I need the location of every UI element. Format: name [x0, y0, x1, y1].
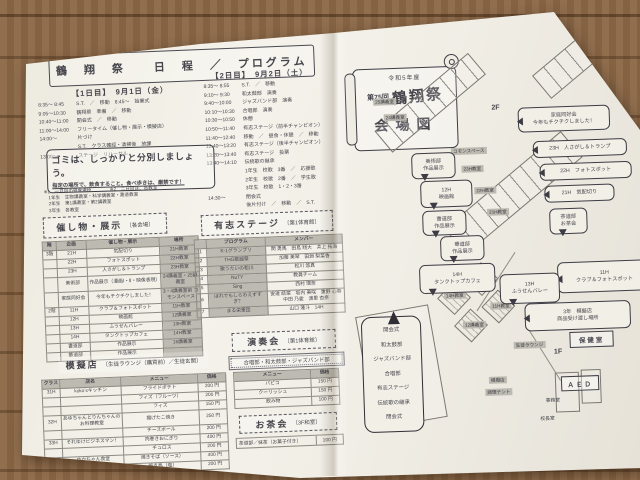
events-table: 階 企画 催し物・展示 場所 3階21H気配切り21H教室22Hフォトスポット2…: [42, 235, 204, 362]
stage-title: 有志ステージ: [214, 216, 280, 232]
schedule-time: 10:40～11:00: [39, 117, 77, 126]
callout-line: クラブ＆フォトスポット: [576, 275, 633, 284]
callout-line: 作品展示: [434, 222, 455, 229]
callout-22h: 22H フォトスポット: [539, 161, 632, 181]
office-label: 事務室: [546, 396, 561, 403]
schedule-time: 11:00～14:00: [39, 126, 77, 135]
gym-program-line: 開会式: [383, 327, 399, 334]
callout-tea-ceremony: 茶道部 お茶会: [549, 207, 588, 234]
aed-box: ＡＥＤ: [561, 375, 600, 391]
schedule-text: S.T. ／ 移動: [241, 80, 275, 88]
notice-line1: ゴミは、しっかりと分別しましょう。: [51, 149, 210, 180]
shop-class-cell: [46, 467, 64, 477]
room-chip: 25講義室: [373, 98, 396, 106]
left-page-program: 鶴 翔 祭 日 程 ／ プログラム 【1日目】 9月1日（金） 8:35～ 8:…: [28, 40, 351, 476]
schedule-time: 14:30～: [208, 193, 246, 202]
stage-no-cell: 7: [197, 309, 209, 318]
floor-label-1f: 1F: [554, 348, 562, 355]
callout-12h-cinema: 12H 映画館: [420, 179, 473, 208]
room-chip: 24講義室: [384, 114, 407, 122]
events-venue: 〔各会場〕: [126, 220, 154, 229]
shop-name-cell: ゆかちゃん食堂: [63, 455, 124, 466]
callout-3rd-year-pickup: 3年 模擬店 商品受け渡し場所: [524, 300, 631, 332]
schedule-time: 9:05～10:30: [38, 109, 76, 118]
gym-program-line: ジャズバンド部: [373, 356, 411, 364]
room-chip: 12講義室: [463, 321, 486, 329]
callout-line: 22H フォトスポット: [560, 167, 611, 176]
tea-item: 茶道部／抹茶（お菓子付き）: [237, 436, 317, 448]
gym-program-line: 伝統歌の継承: [377, 400, 410, 408]
principal-office-label: 校長室: [540, 415, 555, 422]
callout-23h: 23H 人さがし＆トランプ: [533, 138, 628, 158]
gym-program-line: 有志ステージ: [377, 385, 409, 393]
paper-sheet: 鶴 翔 祭 日 程 ／ プログラム 【1日目】 9月1日（金） 8:35～ 8:…: [0, 0, 640, 480]
callout-art-club: 美術部 作品展示: [411, 152, 456, 180]
stage-venue: 〔第1体育館〕: [284, 217, 320, 226]
schedule-time: 10:30～10:50: [205, 116, 243, 125]
shop-class-cell: 34H: [45, 458, 63, 468]
lunch-footnotes: ※1 一日目の昼食場所 ※2 二日目は、各教室 1年生 生物講義室・科学講義室・…: [44, 185, 159, 214]
stage-no-cell: 6: [197, 294, 210, 309]
schedule-time: 9:10～ 9:30: [204, 90, 242, 99]
shops-table: クラス 店名 メニュー 価格 31Hkoko’sキッチンフライドポテト200 円…: [41, 372, 230, 476]
floor-cell: [45, 293, 60, 309]
tea-title: お茶会: [255, 416, 289, 430]
callout-line: 23H 人さがし＆トランプ: [549, 144, 610, 153]
schedule-text: 閉会式: [246, 192, 261, 200]
gym-program-bubble: 開会式和太鼓部ジャズバンド部合唱部有志ステージ伝統歌の継承閉会式: [361, 315, 425, 433]
events-title: 催し物・展示: [56, 218, 122, 234]
callout-line: 今年もチクチクしました！: [533, 118, 595, 127]
concert-venue: 〔第1体育館〕: [284, 335, 320, 344]
food-stall-chip: 模擬店: [489, 376, 507, 384]
schedule-time: [208, 202, 246, 211]
callout-line: ふうせんバレー: [512, 288, 549, 296]
callout-line: お茶会: [561, 221, 577, 228]
callout-line: 商品受け渡し場所: [557, 315, 599, 323]
schedule-text: 開会式 ／ 移動: [77, 116, 117, 125]
right-page-venue-map: 令和5年度 第75回 鶴翔祭 会場図 2F: [336, 1, 640, 467]
schedule-text: 合唱部 演奏: [242, 106, 272, 114]
infirmary-label: 保健室: [579, 334, 605, 345]
schedule-text: 片づけ: [77, 134, 92, 142]
schedule-time: 8:35～ 8:45: [38, 100, 76, 109]
schedule-time: 11:40～12:40: [205, 133, 243, 142]
schedule-time: 9:40～10:00: [204, 99, 242, 108]
callout-line: 21H 気配切り: [562, 189, 598, 197]
schedule-text: 伝統歌の継承: [244, 158, 274, 166]
callout-calligraphy-club: 書道部 作品展示: [422, 210, 467, 237]
page-fold: [320, 28, 350, 476]
tea-venue: 〔3F和室〕: [292, 418, 321, 427]
callout-line: 作品展示: [423, 165, 444, 172]
callout-14h-tanktop-cafe: 14H タンクトップカフェ: [419, 263, 496, 295]
shop-name-cell: [64, 464, 125, 475]
room-chip: 22H教室: [474, 187, 496, 195]
callout-13h: 13H ふうせんバレー: [499, 272, 560, 304]
aed-label: ＡＥＤ: [567, 378, 593, 389]
callout-line: 作品展示: [452, 248, 473, 255]
floor-label-2f: 2F: [491, 104, 499, 111]
price-cell: 200 円: [202, 460, 230, 470]
schedule-text: 後片付け ／ 移動 ／ S.T.: [246, 199, 315, 209]
org-cell: 美術部: [58, 277, 89, 293]
price-cell: 250 円: [200, 409, 229, 425]
menu-item-cell: 焼き鳥（塩）: [125, 461, 202, 473]
callout-flower-club: 華道部 作品展示: [440, 235, 485, 262]
concert-performers: 合唱部・和太鼓部・ジャズバンド部: [243, 355, 330, 366]
infirmary-box: 保健室: [569, 331, 614, 349]
schedule-text: 鶴翔祭 準備 ／ 移動: [76, 106, 131, 115]
menu-item-cell: 飲み物: [235, 397, 312, 409]
schedule-time: 10:50～11:40: [205, 124, 243, 133]
events-section-header: 催し物・展示 〔各会場〕: [43, 213, 168, 239]
callout-home-ec-club: 家庭同好会 今年もチクチクしました！: [517, 105, 610, 133]
org-cell: 家庭同好会: [59, 292, 90, 308]
room-chip: 21H教室: [487, 208, 509, 216]
cooking-tent-chip: 調理テント: [485, 388, 512, 396]
gym-program-line: 合唱部: [384, 371, 400, 378]
schedule-text: 有志ステージ 投票: [244, 148, 289, 157]
shop-class-cell: 32H: [44, 416, 63, 432]
schedule-time: 8:35～ 8:55: [203, 81, 241, 90]
day2-schedule: 8:35～ 8:55S.T. ／ 移動9:10～ 9:30和太鼓部 演奏9:40…: [203, 78, 338, 212]
schedule-time: 10:10～10:30: [204, 107, 242, 116]
callout-21h: 21H 気配切り: [544, 183, 615, 202]
floor-cell: [44, 278, 59, 294]
paper-booklet: 鶴 翔 祭 日 程 ／ プログラム 【1日目】 9月1日（金） 8:35～ 8:…: [0, 0, 640, 480]
callout-line: タンクトップカフェ: [434, 278, 481, 286]
lounge-chip: 生徒ラウンジ: [514, 341, 546, 349]
shops-title: 模擬店: [65, 357, 99, 371]
gym-program-line: 和太鼓部: [381, 341, 403, 348]
callout-line: 映画館: [439, 193, 455, 200]
schedule-text: 和太鼓部 演奏: [242, 89, 277, 97]
callout-11h: 11H クラブ＆フォトスポット: [557, 259, 640, 293]
shops-venue: 〔生徒ラウンジ（購買前）／生徒玄関〕: [102, 356, 201, 368]
schedule-text: 休憩: [243, 115, 253, 122]
schedule-text: ジャズバンド部 演奏: [242, 97, 292, 106]
schedule-time: 14:00～: [39, 134, 77, 143]
concert-title: 演奏会: [247, 334, 281, 348]
schedule-text: 3年生 校歌 1・2・3番: [245, 182, 301, 191]
stage-program-cell: まる栄軍団: [209, 306, 268, 317]
building-northeast: [532, 0, 640, 99]
room-chip: コモンスペース: [451, 147, 487, 155]
room-chip: 23H教室: [461, 165, 483, 173]
stage-section-header: 有志ステージ 〔第1体育館〕: [201, 210, 334, 236]
gym-program-line: 閉会式: [386, 414, 402, 421]
